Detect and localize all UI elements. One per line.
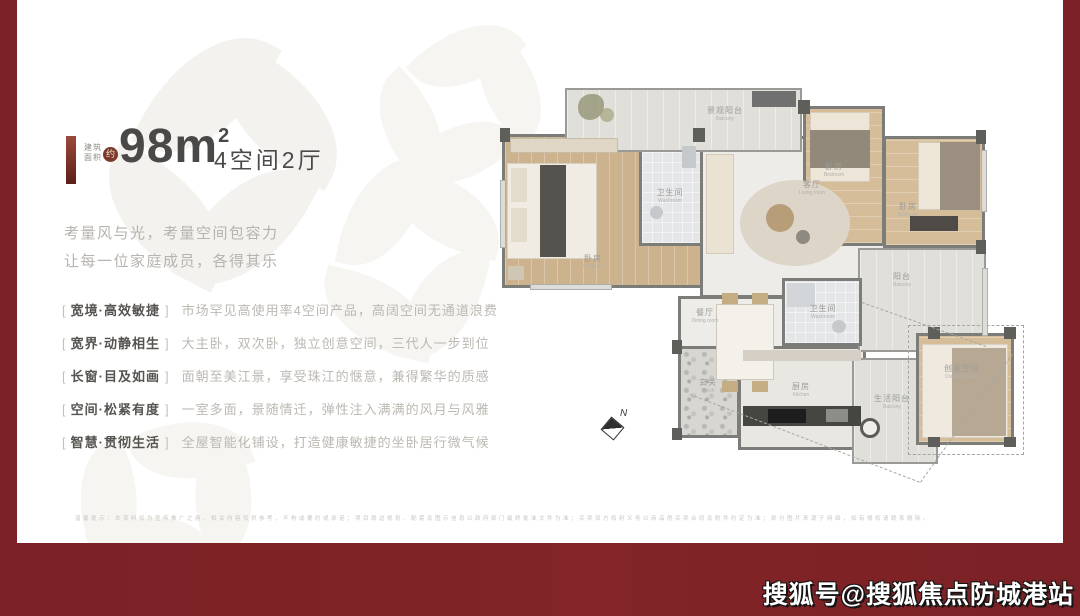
window [981,150,987,212]
room-label-bedroom-3: 卧房Bedroom [898,202,918,218]
footer-band: 搜狐号@搜狐焦点防城港站 [0,543,1080,616]
feature-row: [宽界·动静相生] 大主卧，双次卧，独立创意空间，三代人一步到位 [62,333,498,346]
feature-tag: 宽境·高效敏捷 [71,300,160,319]
compass-n-label: N [620,408,627,419]
wardrobe [510,138,618,153]
north-compass-icon: N [598,410,632,444]
kitchen-sink [826,409,848,422]
room-label-bedroom-master: 卧房Bedroom [583,254,603,270]
coffee-table [766,204,794,232]
wall-block [976,130,986,144]
room-label-living: 客厅Living room [799,180,825,196]
window [500,180,506,248]
room-label-creative-space: 创意空间Creative Space [944,364,980,380]
wall-block [976,240,986,254]
feature-desc: 大主卧，双次卧，独立创意空间，三代人一步到位 [182,333,490,352]
plant [600,108,614,122]
area-rug [740,180,850,266]
feature-row: [长窗·目及如画] 面朝至美江景，享受珠江的惬意，兼得繁华的质感 [62,366,498,379]
dining-chair [752,293,768,304]
flyer-canvas: 建筑 面积 约 98m2 4空间2厅 考量风与光，考量空间包容力 让每一位家庭成… [0,0,1080,616]
bracket: [ [62,369,66,384]
dining-chair [752,381,768,392]
cooktop [768,409,806,423]
kitchen-cabinet [743,350,861,361]
room-label-balcony-east: 阳台Balcony [893,272,911,288]
balcony-cabinet [752,91,796,107]
bracket: ] [165,402,169,417]
dining-table [716,304,774,380]
nightstand [508,266,524,280]
wall-block [1004,437,1016,447]
bracket: ] [165,303,169,318]
wall-block [798,100,810,114]
feature-tag: 长窗·目及如画 [71,366,160,385]
fine-print-disclaimer: 温馨提示：本资料仅为宣传推广之用，相关内容仅供参考，不构成要约或承诺；项目周边规… [75,514,1013,522]
red-accent-bar [66,136,76,184]
wall-block [1004,327,1016,339]
feature-list: [宽境·高效敏捷] 市场罕见高使用率4空间产品，高阔空间无通道浪费 [宽界·动静… [62,300,498,465]
right-red-border [1063,0,1080,616]
wall-block [500,128,510,142]
tagline: 考量风与光，考量空间包容力 让每一位家庭成员，各得其乐 [64,220,279,276]
feature-tag: 宽界·动静相生 [71,333,160,352]
tagline-line2: 让每一位家庭成员，各得其乐 [64,253,279,270]
room-label-foyer: 玄关Porch [699,378,717,394]
feature-desc: 全屋智能化铺设，打造健康敏捷的坐卧居行微气候 [182,432,490,451]
approx-badge: 约 [103,147,118,162]
feature-desc: 一室多面，景随情迁，弹性注入满满的风月与风雅 [182,399,490,418]
area-number: 98m [119,120,218,173]
room-label-view-balcony: 景观阳台Balcony [707,106,743,122]
floor-plan: 景观阳台Balcony 卧房Bedroom 卫生间Washroom 客厅Livi… [500,88,1015,500]
bed-creative-blanket [952,348,1006,436]
room-label-bathroom-2: 卫生间Washroom [810,304,837,320]
bracket: ] [165,369,169,384]
feature-row: [空间·松紧有度] 一室多面，景随情迁，弹性注入满满的风月与风雅 [62,399,498,412]
watermark-text: 搜狐号@搜狐焦点防城港站 [763,575,1074,611]
wall-block [693,128,705,142]
bed-runner [540,165,566,257]
sofa [706,154,734,254]
washbasin [682,146,696,168]
side-table [796,230,810,244]
bracket: [ [62,435,66,450]
dining-chair [722,293,738,304]
pillow [511,168,527,202]
layout-subtitle: 4空间2厅 [214,141,324,175]
bracket: ] [165,336,169,351]
bracket: [ [62,303,66,318]
compass-needle [601,417,625,441]
feature-desc: 面朝至美江景，享受珠江的惬意，兼得繁华的质感 [182,366,490,385]
area-label-line2: 面积 [84,153,102,162]
room-label-bathroom-1: 卫生间Washroom [657,188,684,204]
area-label: 建筑 面积 [84,143,102,163]
dining-chair [722,381,738,392]
wall-block [672,428,682,440]
room-label-bedroom-2: 卧房Bedroom [824,162,844,178]
room-label-dining: 餐厅Dining room [692,308,719,324]
pillow [511,208,527,242]
feature-row: [宽境·高效敏捷] 市场罕见高使用率4空间产品，高阔空间无通道浪费 [62,300,498,313]
desk [910,216,958,231]
tagline-line1: 考量风与光，考量空间包容力 [64,225,279,242]
bed-3-blanket [940,142,980,210]
bracket: [ [62,402,66,417]
window [530,284,612,290]
bracket: ] [165,435,169,450]
left-red-border [0,0,17,616]
toilet [832,320,846,333]
room-label-kitchen: 厨房Kitchen [792,382,810,398]
toilet [650,206,663,219]
room-label-service-balcony: 生活阳台Balcony [874,394,910,410]
bracket: [ [62,336,66,351]
feature-tag: 空间·松紧有度 [71,399,160,418]
wall-block [928,437,940,447]
washer [860,418,880,438]
window [982,268,988,336]
area-label-line1: 建筑 [84,143,102,152]
wall-block [672,340,682,354]
feature-row: [智慧·贯彻生活] 全屋智能化铺设，打造健康敏捷的坐卧居行微气候 [62,432,498,445]
feature-desc: 市场罕见高使用率4空间产品，高阔空间无通道浪费 [182,300,498,319]
feature-tag: 智慧·贯彻生活 [71,432,160,451]
